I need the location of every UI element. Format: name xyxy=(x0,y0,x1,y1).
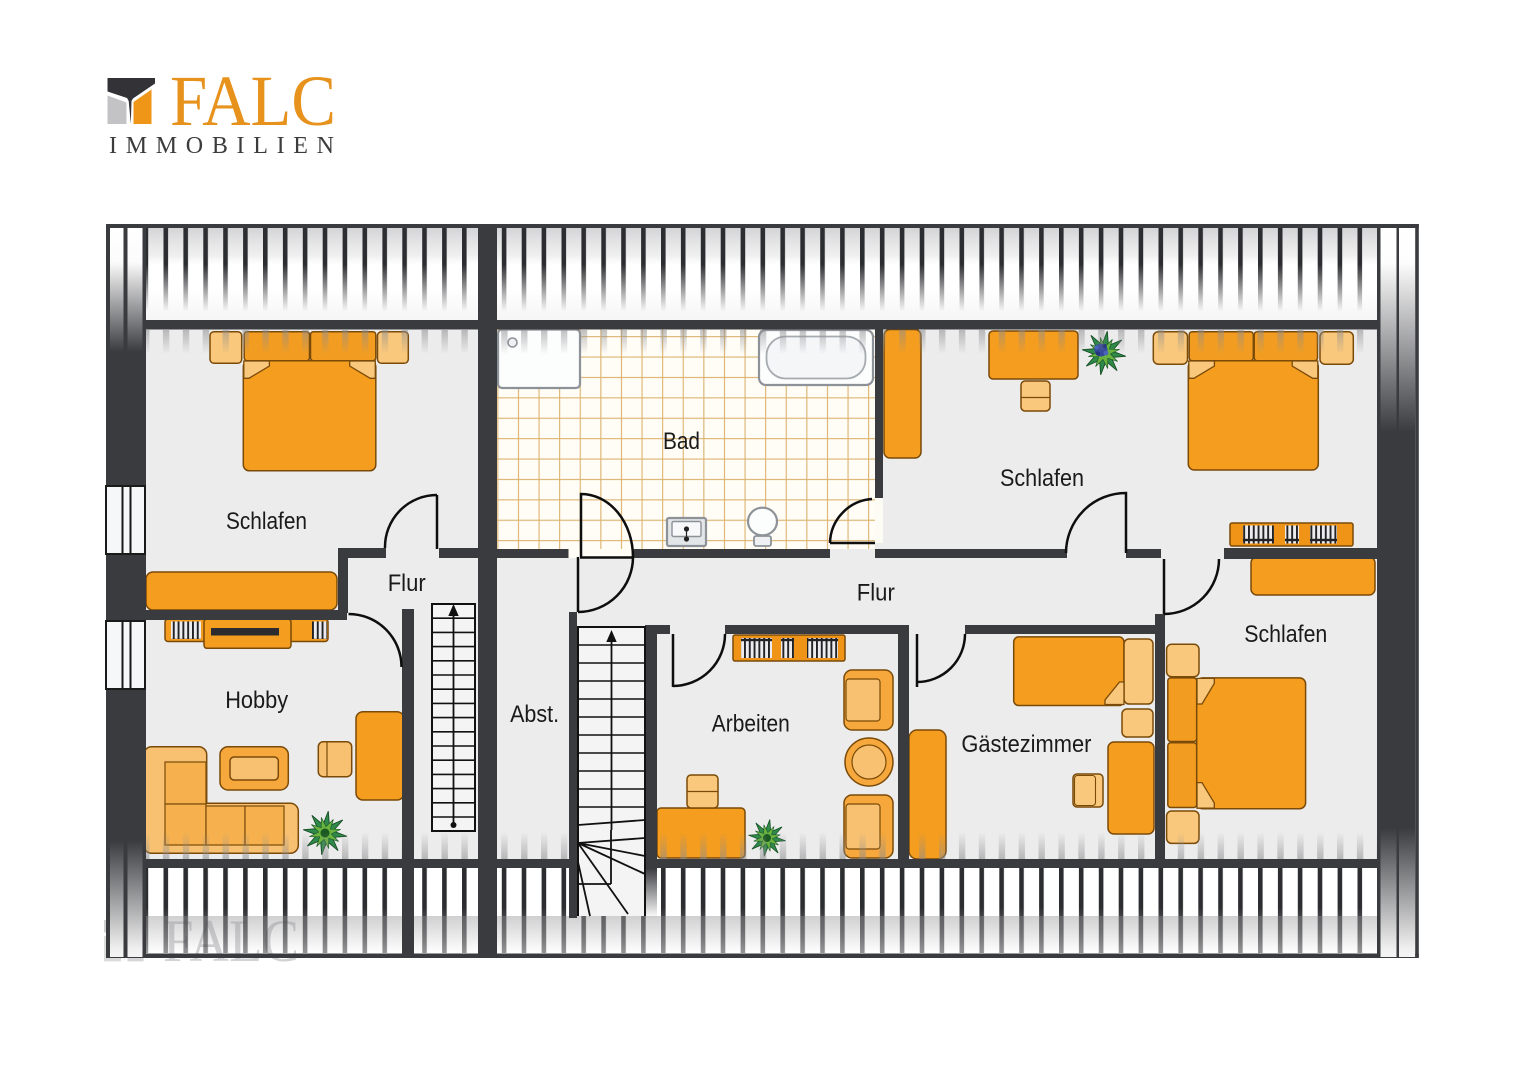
svg-text:Bad: Bad xyxy=(663,428,700,455)
svg-text:Gästezimmer: Gästezimmer xyxy=(961,731,1091,758)
svg-text:Hobby: Hobby xyxy=(225,687,288,714)
svg-text:Flur: Flur xyxy=(857,580,895,607)
svg-text:Abst.: Abst. xyxy=(510,701,559,728)
svg-text:IMMOBILIEN: IMMOBILIEN xyxy=(109,133,334,159)
svg-text:FALC: FALC xyxy=(170,61,336,141)
svg-text:Schlafen: Schlafen xyxy=(226,508,307,535)
svg-text:Flur: Flur xyxy=(388,570,426,597)
svg-text:Schlafen: Schlafen xyxy=(1244,621,1327,648)
svg-text:Schlafen: Schlafen xyxy=(1000,465,1084,492)
svg-text:Arbeiten: Arbeiten xyxy=(712,711,790,738)
